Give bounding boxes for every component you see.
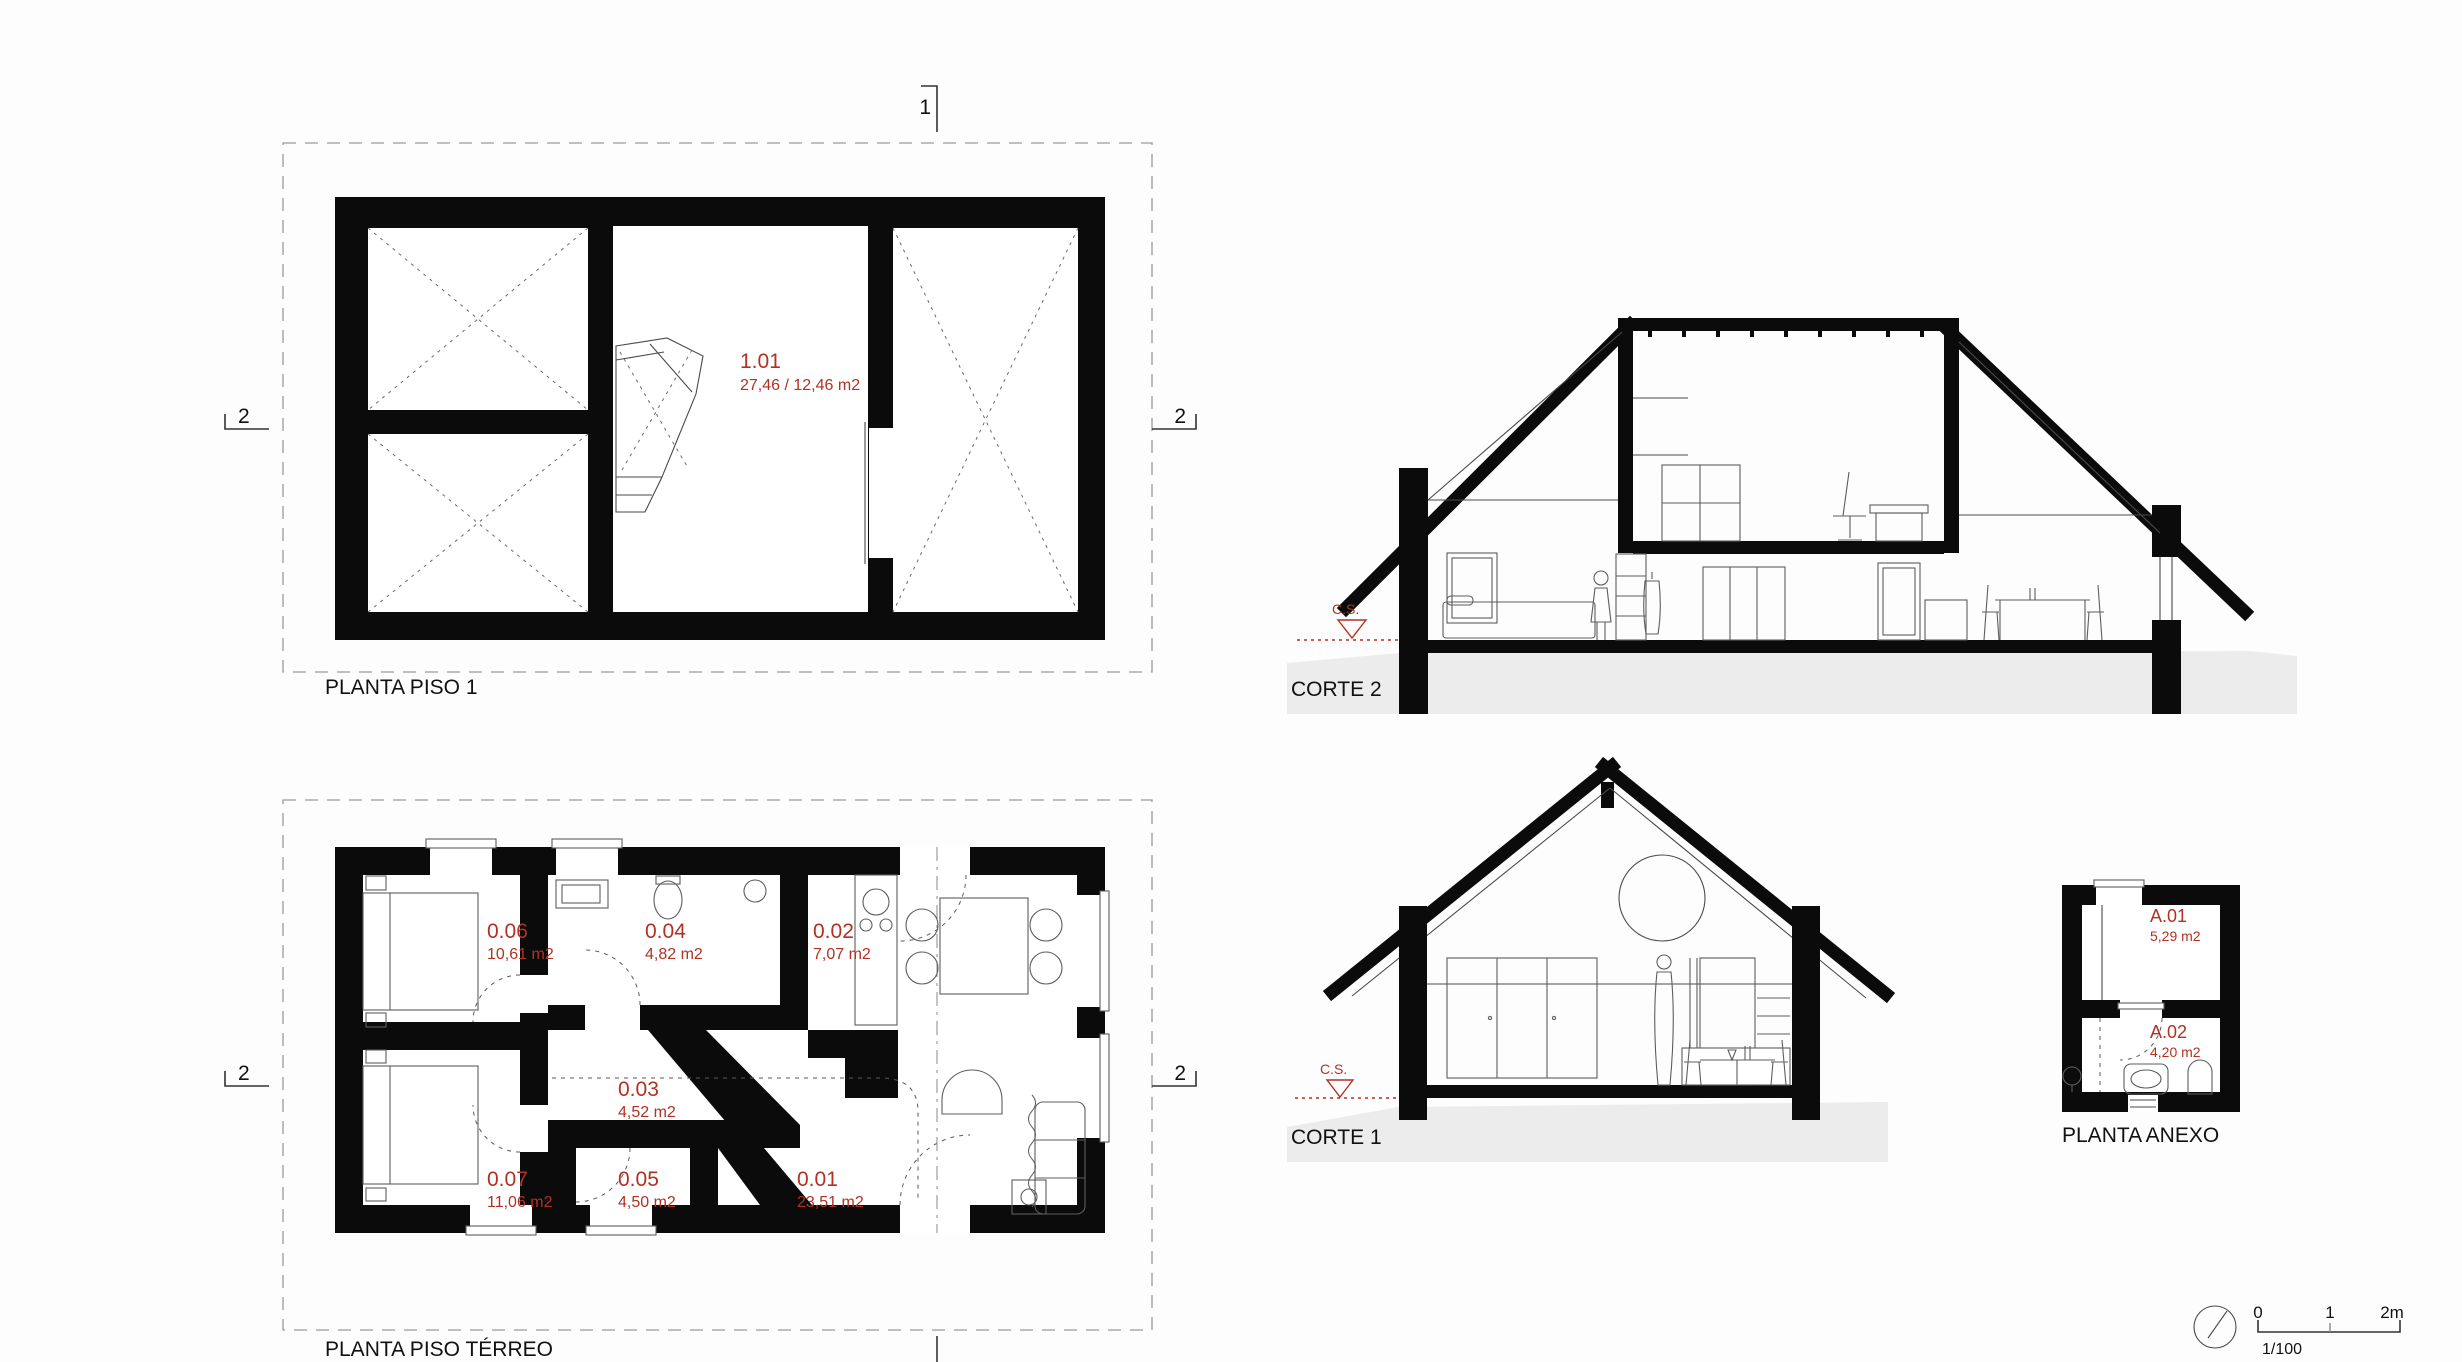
svg-text:7,07 m2: 7,07 m2 xyxy=(813,946,871,963)
planta-anexo: A.01 5,29 m2 A.02 4,20 m2 PLANTA ANEXO xyxy=(2062,880,2240,1147)
north-arrow-icon xyxy=(2194,1306,2236,1348)
room-label-0-05: 0.05 xyxy=(618,1168,659,1191)
title-planta-anexo: PLANTA ANEXO xyxy=(2062,1124,2219,1147)
scale-bar: 0 1 2m 1/100 xyxy=(2253,1303,2404,1358)
svg-text:4,20 m2: 4,20 m2 xyxy=(2150,1044,2201,1060)
scale-1: 1 xyxy=(2325,1303,2334,1322)
scale-ratio: 1/100 xyxy=(2262,1341,2302,1358)
room-label-0-07: 0.07 xyxy=(487,1168,528,1191)
svg-text:2: 2 xyxy=(238,405,250,428)
title-corte-1: CORTE 1 xyxy=(1291,1126,1382,1149)
planta-piso-1: 1 1.01 27,46 / 12,46 m2 xyxy=(225,86,1196,699)
rafter-ticks xyxy=(1648,331,1924,337)
svg-text:C.S.: C.S. xyxy=(1332,601,1359,617)
room-label-1-01: 1.01 xyxy=(740,350,781,373)
svg-text:C.S.: C.S. xyxy=(1320,1061,1347,1077)
room-label-0-01: 0.01 xyxy=(797,1168,838,1191)
svg-text:2: 2 xyxy=(1174,405,1186,428)
window-upper-plan xyxy=(865,422,893,564)
room-label-0-02: 0.02 xyxy=(813,920,854,943)
svg-text:23,51 m2: 23,51 m2 xyxy=(797,1194,864,1211)
drawing-sheet: 1 1.01 27,46 / 12,46 m2 xyxy=(0,0,2462,1362)
round-window xyxy=(1619,855,1705,941)
svg-text:2: 2 xyxy=(1174,1062,1186,1085)
room-label-0-04: 0.04 xyxy=(645,920,686,943)
section-marker-2-right-top: 2 xyxy=(1152,405,1196,429)
room-label-0-03: 0.03 xyxy=(618,1078,659,1101)
datum-marker-cs: C.S. xyxy=(1295,1061,1399,1098)
svg-text:4,50 m2: 4,50 m2 xyxy=(618,1194,676,1211)
title-corte-2: CORTE 2 xyxy=(1291,678,1382,701)
furniture xyxy=(1447,955,1790,1085)
room-label-0-06: 0.06 xyxy=(487,920,528,943)
corte-1: C.S. CORTE 1 xyxy=(1287,766,1888,1162)
title-planta-piso-terreo: PLANTA PISO TÉRREO xyxy=(325,1338,553,1361)
svg-text:4,52 m2: 4,52 m2 xyxy=(618,1104,676,1121)
section-marker-2-left-bottom: 2 xyxy=(225,1062,269,1086)
corte-2: C.S. CORTE 2 xyxy=(1287,318,2297,714)
svg-text:4,82 m2: 4,82 m2 xyxy=(645,946,703,963)
section-marker-1-top: 1 xyxy=(919,86,937,132)
svg-text:10,61 m2: 10,61 m2 xyxy=(487,946,554,963)
svg-text:2: 2 xyxy=(238,1062,250,1085)
room-label-a-02: A.02 xyxy=(2150,1022,2187,1042)
datum-marker-cs: C.S. xyxy=(1297,601,1399,640)
section-marker-2-left-top: 2 xyxy=(225,405,269,429)
scale-0: 0 xyxy=(2253,1303,2262,1322)
title-planta-piso-1: PLANTA PISO 1 xyxy=(325,676,478,699)
scale-2m: 2m xyxy=(2380,1303,2404,1322)
room-area-1-01: 27,46 / 12,46 m2 xyxy=(740,377,860,394)
shelf-column xyxy=(1616,554,1646,640)
section-1-number: 1 xyxy=(919,96,931,119)
svg-text:11,06 m2: 11,06 m2 xyxy=(487,1194,553,1211)
ground xyxy=(1287,651,2297,714)
svg-text:5,29 m2: 5,29 m2 xyxy=(2150,928,2201,944)
planta-piso-terreo: 0.06 10,61 m2 0.04 4,82 m2 0.02 7,07 m2 … xyxy=(225,800,2142,1362)
section-marker-2-right-bottom: 2 xyxy=(1152,1062,1196,1086)
room-label-a-01: A.01 xyxy=(2150,906,2187,926)
